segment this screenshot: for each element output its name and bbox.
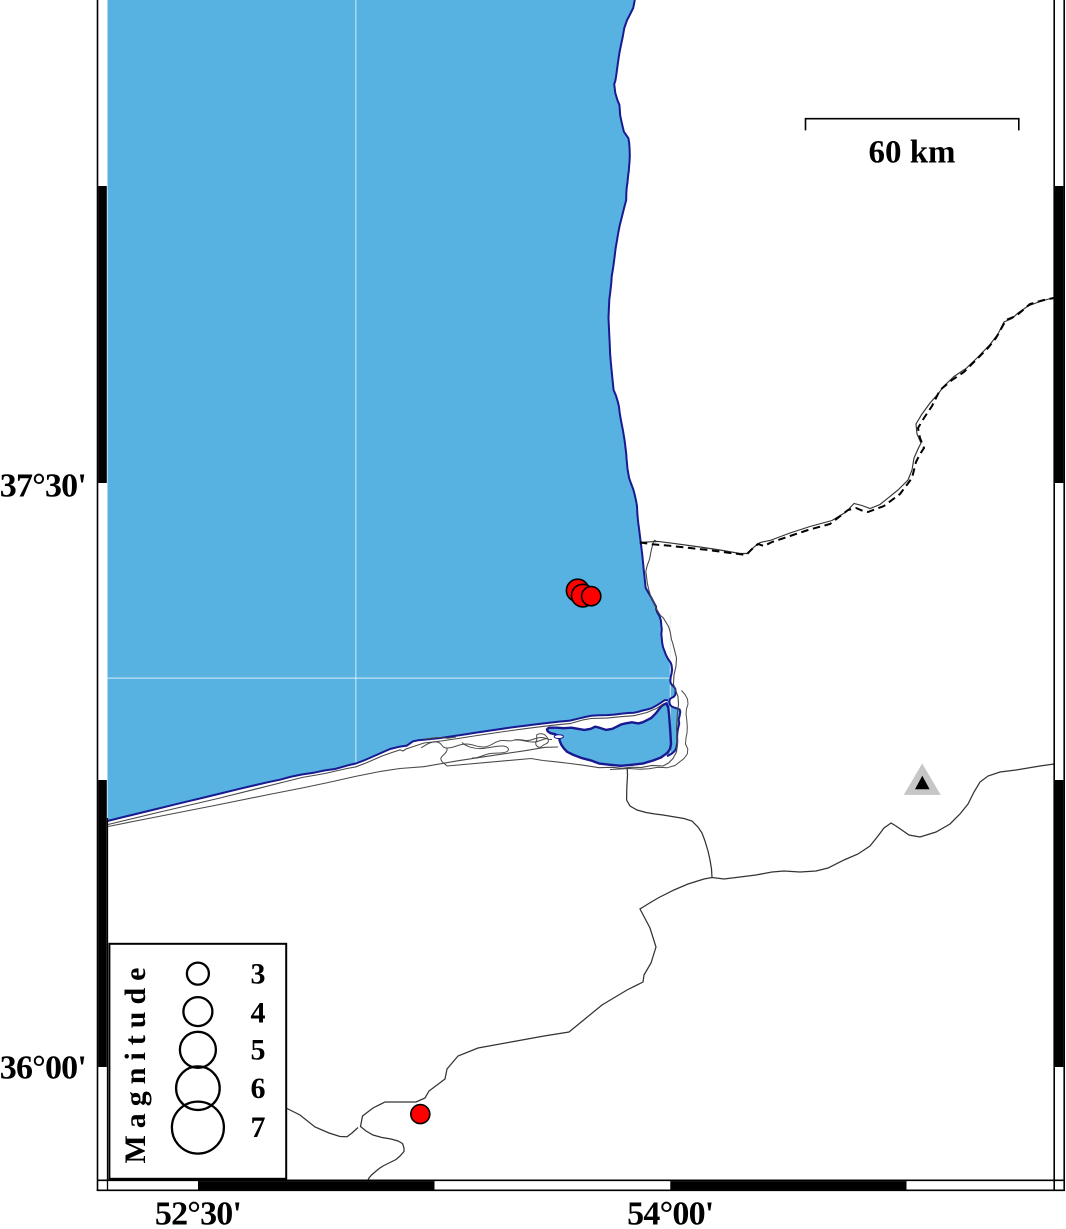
svg-text:Magnitude: Magnitude	[119, 960, 152, 1163]
svg-text:4: 4	[251, 997, 266, 1030]
svg-text:52°30': 52°30'	[155, 1196, 241, 1229]
svg-text:3: 3	[251, 958, 266, 991]
svg-text:37°30': 37°30'	[0, 467, 86, 504]
svg-text:6: 6	[251, 1072, 266, 1105]
svg-text:60 km: 60 km	[868, 135, 955, 171]
svg-text:7: 7	[251, 1111, 266, 1144]
svg-text:5: 5	[251, 1034, 266, 1067]
svg-text:54°00': 54°00'	[627, 1196, 713, 1229]
svg-text:36°00': 36°00'	[0, 1049, 86, 1086]
